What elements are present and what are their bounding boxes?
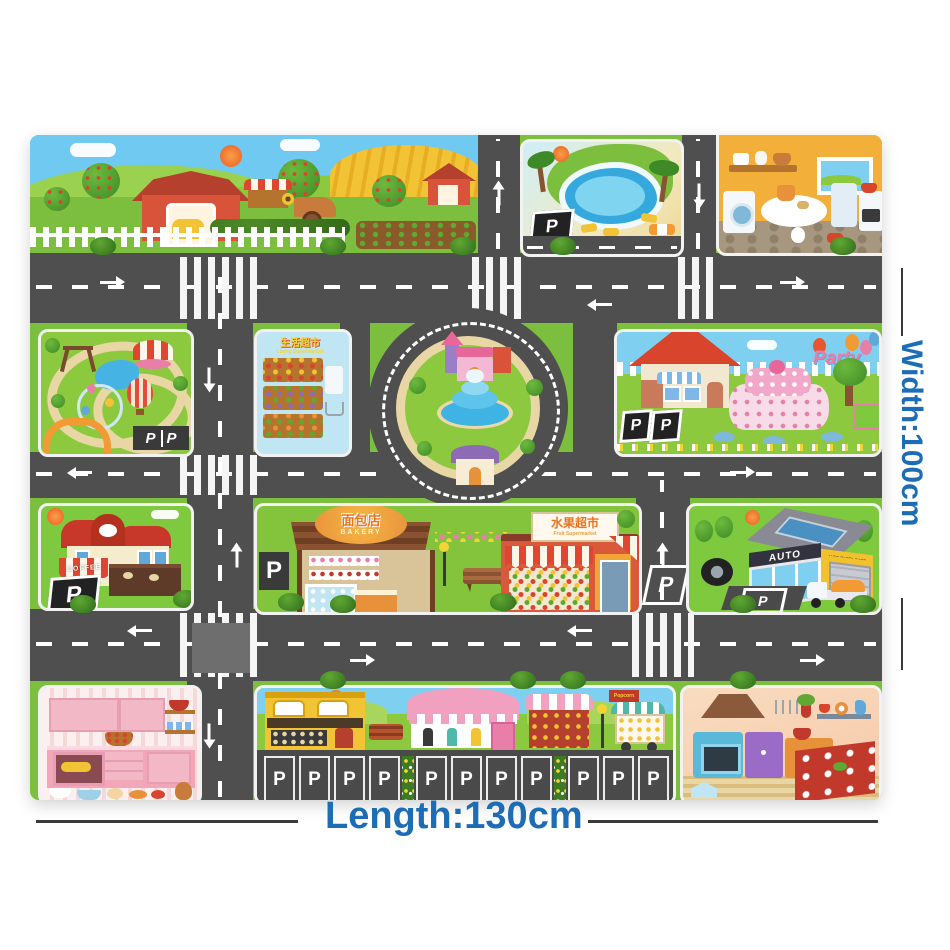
castle-side-tower <box>493 347 511 373</box>
width-label: Width:100cm <box>884 340 928 600</box>
crosswalk <box>632 613 694 677</box>
bush-icon <box>70 595 96 613</box>
produce-shelf <box>263 358 323 382</box>
fruit-market-sign: 水果超市 Fruit Supermarket <box>531 512 619 542</box>
parking-stall: P <box>521 756 552 800</box>
length-label: Length:130cm <box>325 795 583 838</box>
tree-icon <box>833 358 867 386</box>
oven-window <box>862 209 880 222</box>
bush-icon <box>173 590 194 608</box>
parking-stall: P <box>638 756 669 800</box>
coffee-sign-text: COFFEE <box>67 563 102 572</box>
food-icon <box>833 762 847 771</box>
upper-cabinet <box>49 698 119 732</box>
terrace-table-icon <box>149 574 159 581</box>
fruit-door <box>600 560 630 614</box>
upper-cabinet <box>119 698 165 732</box>
restaurant-display <box>271 730 327 746</box>
park-parking: P P <box>133 426 189 450</box>
cottage-door <box>469 467 481 485</box>
product-photo: P <box>0 0 950 950</box>
road-arrow-marking <box>350 659 372 662</box>
fence-rail <box>30 233 345 237</box>
tree-icon <box>526 379 543 396</box>
popcorn-sign-text: Popcorn <box>614 693 634 699</box>
parking-stall: P <box>264 756 295 800</box>
tree-icon <box>409 377 426 394</box>
road-arrow-marking <box>498 184 501 206</box>
coffee-logo-icon <box>99 524 117 537</box>
sun-icon <box>745 510 760 525</box>
market-sign: 生活超市 Living Supermarket <box>259 334 341 356</box>
tow-truck-cab <box>807 582 827 598</box>
tree-icon <box>45 338 60 353</box>
road-arrow-marking <box>570 629 592 632</box>
bush-icon <box>90 237 116 255</box>
road-arrow-marking <box>70 471 92 474</box>
shopping-cart-icon <box>325 402 344 416</box>
jar-icon <box>755 151 767 165</box>
tree-icon <box>173 376 188 391</box>
stall-awning <box>244 179 292 190</box>
jug-icon <box>855 700 866 715</box>
parking-sign: P <box>259 552 289 590</box>
palm-tree-icon <box>537 166 546 192</box>
produce-shelf <box>263 386 323 410</box>
cabinet-door <box>147 752 191 784</box>
kiosk-body <box>529 710 589 748</box>
house-door <box>707 382 723 408</box>
park-gate <box>43 418 111 455</box>
tree-icon <box>520 439 535 454</box>
width-dimension-line <box>901 268 903 336</box>
market-sign-en: Living Supermarket <box>259 349 341 355</box>
pink-kitchen-scene <box>38 685 202 800</box>
utensils-icon <box>775 700 799 714</box>
plant-icon <box>797 694 815 706</box>
road-arrow-marking <box>130 629 152 632</box>
house-window <box>663 386 681 402</box>
shops-and-parking-block: Popcorn P P P P P P P P P P P P <box>254 685 676 800</box>
sun-icon <box>220 145 242 167</box>
lamp-head-icon <box>597 704 607 714</box>
cake-shelf <box>309 570 379 580</box>
washer-door-icon <box>730 203 754 227</box>
plate-icon <box>835 702 848 715</box>
parking-pad <box>192 623 250 673</box>
bakery-sign-cn: 面包店 <box>315 510 407 529</box>
crosswalk <box>180 455 258 495</box>
width-dimension-line <box>901 598 903 670</box>
mannequin-icon <box>423 728 433 746</box>
parking-sign: P <box>649 409 683 443</box>
terrace-table-icon <box>123 572 133 579</box>
coffee-roof-gable <box>117 526 171 548</box>
road-arrow-marking <box>698 184 701 206</box>
wheel-icon <box>811 598 821 608</box>
drawers <box>105 752 143 780</box>
hot-air-balloon-icon <box>127 378 153 408</box>
cake-shelf <box>309 556 379 566</box>
party-garden: Party P P <box>614 329 882 457</box>
tree-icon <box>417 441 432 456</box>
pool-water-shallow <box>575 176 645 216</box>
mixing-bowl-icon <box>77 790 101 800</box>
ferris-cab-icon <box>81 406 90 415</box>
cake-decor-icon <box>769 360 785 374</box>
bush-icon <box>850 595 876 613</box>
bakery-sign-en: BAKERY <box>315 529 407 536</box>
parking-stall: P <box>334 756 365 800</box>
lane-marking <box>36 285 876 289</box>
lamp-head-icon <box>439 542 449 552</box>
brick-wall <box>641 380 663 408</box>
dining-table <box>761 195 827 227</box>
road-arrow-marking <box>208 368 211 390</box>
parking-letter: P <box>167 430 177 447</box>
rabbit-icon <box>791 227 805 243</box>
bench <box>369 724 403 740</box>
bush-icon <box>830 237 856 255</box>
cloud-icon <box>280 139 320 151</box>
tree-icon <box>617 510 635 528</box>
produce-stand <box>509 568 589 610</box>
teddy-bear-icon <box>175 782 192 800</box>
pool-area: P <box>520 139 684 257</box>
street-lamp-icon <box>601 710 604 748</box>
wheel-icon <box>835 598 845 608</box>
bush-icon <box>320 237 346 255</box>
road-arrow-marking <box>800 659 822 662</box>
fruit-sign-en: Fruit Supermarket <box>533 531 617 537</box>
bush-icon <box>320 671 346 689</box>
bush-icon <box>510 671 536 689</box>
road-arrow-marking <box>730 471 752 474</box>
restaurant-window <box>273 700 305 717</box>
stool-icon <box>821 432 843 442</box>
playground-park: P P <box>38 329 194 457</box>
house-awning <box>657 372 701 384</box>
pastry-icon <box>129 790 147 799</box>
lane-marking <box>218 259 222 797</box>
ferris-cab-icon <box>87 384 96 393</box>
wall-shelf <box>729 165 797 172</box>
city-play-mat: P <box>30 135 882 800</box>
bush-icon <box>560 671 586 689</box>
popcorn-cart-body <box>615 714 665 744</box>
carousel-base <box>135 359 171 369</box>
tree-icon <box>51 394 65 408</box>
fountain-top <box>461 381 489 395</box>
parking-stall: P <box>603 756 634 800</box>
cloud-icon <box>747 340 777 350</box>
dining-table-red <box>795 741 875 800</box>
cabinet-handle-icon <box>761 750 766 755</box>
castle-roof <box>455 347 495 357</box>
picket-fence <box>30 227 345 247</box>
bush-icon <box>490 593 516 611</box>
road-arrow-marking <box>100 281 122 284</box>
parking-stall: P <box>416 756 447 800</box>
fridge <box>831 183 857 227</box>
fruit-sign-cn: 水果超市 <box>533 514 617 531</box>
flower-divider <box>402 756 414 800</box>
bush-icon <box>278 593 304 611</box>
cloud-icon <box>70 143 116 157</box>
pot-icon <box>861 183 877 193</box>
popcorn-awning <box>611 702 665 714</box>
produce-shelf <box>263 414 323 438</box>
parking-stall: P <box>486 756 517 800</box>
road-arrow-marking <box>236 546 239 568</box>
parking-lot-strip: P P P P P P P P P P P P <box>257 750 673 800</box>
parking-stall: P <box>673 756 676 800</box>
stool-icon <box>713 432 735 442</box>
parking-stall: P <box>299 756 330 800</box>
gift-box-icon <box>853 404 882 430</box>
bush-icon <box>550 237 576 255</box>
restaurant-window <box>317 700 349 717</box>
bush-icon <box>730 595 756 613</box>
sunflower-icon <box>282 193 294 205</box>
road-roundabout-east <box>573 323 617 453</box>
fruit-basket-icon <box>105 732 133 746</box>
length-dimension-line <box>36 820 298 823</box>
kiosk-awning <box>525 694 593 710</box>
cups-icon <box>167 722 193 730</box>
restaurant-door <box>335 728 353 748</box>
shuttle-bus-icon <box>649 224 675 235</box>
lounger-icon <box>603 228 619 236</box>
ferris-cab-icon <box>105 398 114 407</box>
shopping-street-block: P 面包店 BAKERY 水果超市 Fruit Supermarket <box>254 503 642 615</box>
mixing-bowl-icon <box>49 788 71 798</box>
oven-window <box>701 744 741 774</box>
bush-icon <box>730 671 756 689</box>
flower-vase-icon <box>801 704 811 718</box>
coffee-terrace <box>109 564 181 596</box>
range-hood <box>701 694 765 718</box>
balloon-icon <box>845 334 859 351</box>
fountain-spray <box>466 369 484 383</box>
farm-scene <box>30 135 478 253</box>
small-barn-door <box>438 185 458 205</box>
parking-stall: P <box>369 756 400 800</box>
roundabout-park <box>396 336 540 480</box>
bread-in-oven-icon <box>61 762 91 772</box>
house-window <box>683 386 701 402</box>
strawberries-icon <box>151 790 165 799</box>
food-icon <box>797 201 809 209</box>
bush-icon <box>450 237 476 255</box>
cashier-counter <box>325 366 343 394</box>
tire-icon <box>701 558 733 586</box>
sun-icon <box>553 146 569 162</box>
lane-marking <box>36 642 876 646</box>
sun-icon <box>47 508 64 525</box>
dining-room-scene <box>680 685 882 800</box>
carousel-icon <box>133 340 173 360</box>
tree-icon <box>695 520 713 542</box>
bench-legs <box>467 584 505 592</box>
coffee-house-block: COFFEE P <box>38 503 194 611</box>
cloud-icon <box>151 510 179 519</box>
lounger-icon <box>581 223 598 233</box>
road-arrow-marking <box>208 724 211 746</box>
road-arrow-marking <box>590 303 612 306</box>
teacup-icon <box>819 704 830 713</box>
balloon-icon <box>869 332 880 346</box>
street-lamp-icon <box>443 548 446 586</box>
market-sign-cn: 生活超市 <box>259 334 341 349</box>
wall-shelf <box>817 714 871 719</box>
bush-icon <box>330 595 356 613</box>
boutique-door <box>491 722 515 752</box>
length-dimension-line <box>588 820 878 823</box>
flower-divider <box>554 756 566 800</box>
restaurant-sign-band <box>267 718 363 728</box>
balloon-basket <box>136 409 144 415</box>
apple-tree-icon <box>372 175 406 207</box>
parking-stall: P <box>451 756 482 800</box>
parking-stall: P <box>568 756 599 800</box>
grocery-basket-icon <box>777 185 795 201</box>
parking-sign: P <box>619 409 653 443</box>
dough-icon <box>107 788 123 799</box>
tree-icon <box>715 516 733 538</box>
bakery-counter <box>355 590 397 615</box>
dishes-icon <box>733 153 749 165</box>
apple-tree-icon <box>82 163 120 199</box>
crosswalk <box>678 257 720 319</box>
crosswalk <box>180 257 258 319</box>
kitchen-room-scene <box>716 135 882 256</box>
flower-border <box>617 444 879 451</box>
towed-car-icon <box>831 580 865 592</box>
mannequin-icon <box>447 728 457 746</box>
popcorn-sign-flag: Popcorn <box>609 690 639 702</box>
road-arrow-marking <box>780 281 802 284</box>
bakery-bread-sign: 面包店 BAKERY <box>315 504 407 544</box>
apple-tree-icon <box>44 187 70 211</box>
purple-cabinet <box>745 732 783 778</box>
mannequin-icon <box>471 728 481 746</box>
wall-shelf <box>165 730 195 734</box>
parking-letter: P <box>145 430 162 447</box>
parking-marking: P <box>642 565 691 605</box>
living-supermarket: 生活超市 Living Supermarket <box>254 329 352 457</box>
